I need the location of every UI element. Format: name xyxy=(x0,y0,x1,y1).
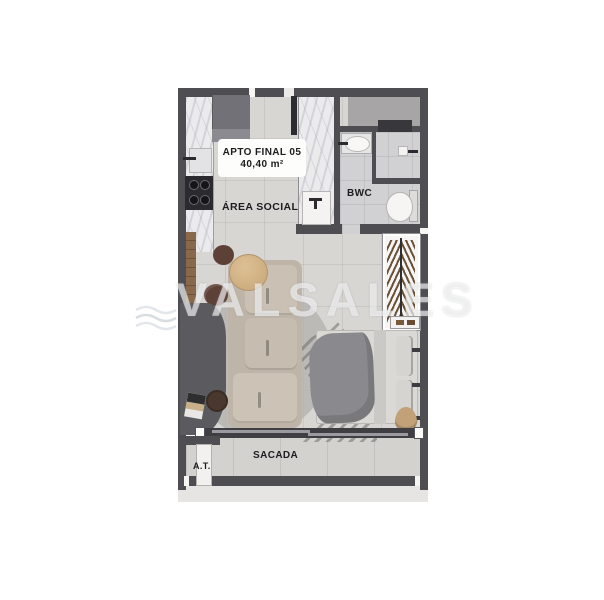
balcony-outer-ledge xyxy=(178,486,428,502)
label-social-area: ÁREA SOCIAL xyxy=(222,201,298,213)
kitchen-counter xyxy=(186,96,214,252)
laundry-faucet-icon xyxy=(309,198,322,201)
cooktop xyxy=(185,176,213,210)
balcony-railing xyxy=(184,476,420,486)
wall-notch-right xyxy=(420,228,428,234)
wall-shower-partition xyxy=(372,132,376,182)
door-jamb xyxy=(414,427,424,439)
desk-stool xyxy=(206,390,228,412)
burner-icon xyxy=(200,195,210,205)
kitchen-faucet-icon xyxy=(183,157,196,160)
bathroom-sink-basin xyxy=(345,136,370,152)
bathroom-faucet-icon xyxy=(338,142,348,145)
bwc-door-opening xyxy=(342,224,360,234)
burner-icon xyxy=(200,180,210,190)
railing-notch-right xyxy=(415,476,420,486)
bwc-cabinet xyxy=(378,120,412,132)
fridge xyxy=(212,95,250,142)
wall-hook-icon xyxy=(412,383,420,387)
burner-icon xyxy=(189,180,199,190)
sliding-door-panel xyxy=(212,430,310,433)
burner-icon xyxy=(189,195,199,205)
balcony-floor xyxy=(186,436,420,478)
floorplan-canvas: APTO FINAL 05 40,40 m² ÁREA SOCIAL BWC S… xyxy=(0,0,604,600)
unit-area: 40,40 m² xyxy=(240,159,283,170)
wall-bwc-left xyxy=(334,96,340,232)
kitchen-sink xyxy=(189,148,212,173)
unit-title: APTO FINAL 05 xyxy=(223,147,302,158)
laundry-tub xyxy=(302,191,331,225)
watermark-text: VALSALES xyxy=(176,272,479,327)
label-balcony: SACADA xyxy=(253,450,298,461)
sofa-seam xyxy=(266,340,269,356)
waves-logo-icon xyxy=(134,302,178,334)
sofa-chaise-cushion xyxy=(233,373,297,423)
wall-hook-icon xyxy=(412,348,420,352)
shower-head-icon xyxy=(398,146,408,156)
label-technical-area: A.T. xyxy=(193,461,211,471)
bed-sheet-fold xyxy=(374,330,386,424)
railing-notch-left xyxy=(184,476,189,486)
entry-door-leaf xyxy=(291,96,297,135)
label-bathroom: BWC xyxy=(347,188,372,199)
sofa-seam xyxy=(258,392,261,408)
wall-shower-bottom xyxy=(372,178,420,184)
bed-blanket xyxy=(308,332,375,424)
sliding-door-panel xyxy=(308,433,408,436)
unit-card: APTO FINAL 05 40,40 m² xyxy=(218,139,306,177)
toilet-bowl xyxy=(386,192,413,222)
bed-pillow xyxy=(396,336,413,376)
wall-bwc-bottom xyxy=(296,224,428,234)
